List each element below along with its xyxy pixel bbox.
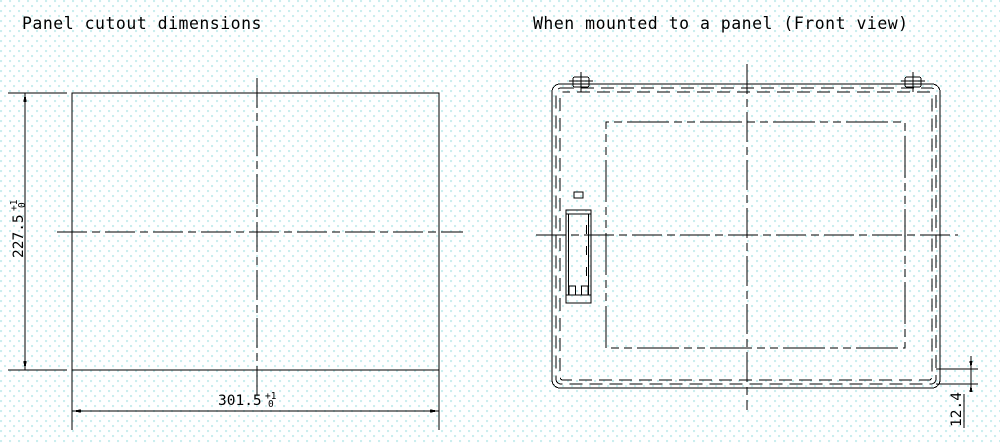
height-dimension-label: 227.5 +1 0 [9,199,28,258]
connector-foot-right [582,286,589,295]
mounting-clip-left [569,72,593,92]
width-dimension-label: 301.5 +1 0 [218,391,277,410]
panel-cutout-view: Panel cutout dimensions 227.5 +1 0 [8,14,463,430]
height-tolerance-minus: 0 [17,202,28,208]
bezel-outline [552,84,940,388]
depth-dimension-label: 12.4 [949,392,965,427]
arrowhead-up [23,93,26,102]
hidden-case-edge [560,92,932,380]
arrowhead-down [969,361,972,369]
right-view-title: When mounted to a panel (Front view) [533,14,909,33]
depth-dimension: 12.4 [936,356,978,428]
arrowhead-right [430,409,439,412]
connector-latch [574,192,583,198]
hidden-cutout-edge [556,88,936,384]
arrowhead-down [23,361,26,370]
left-view-title: Panel cutout dimensions [22,14,262,33]
mounted-front-view: When mounted to a panel (Front view) [533,14,978,428]
technical-drawing-page: Panel cutout dimensions 227.5 +1 0 [0,0,1000,443]
width-dimension: 301.5 +1 0 [72,370,439,430]
side-connector [566,192,591,303]
mounting-clip-right [901,72,925,92]
arrowhead-up [969,384,972,392]
connector-body [566,210,591,303]
depth-value: 12.4 [949,392,965,427]
width-tolerance-minus: 0 [268,399,274,410]
width-value: 301.5 [218,393,262,409]
height-value: 227.5 [11,214,27,258]
connector-foot-left [569,286,576,295]
arrowhead-left [72,409,81,412]
